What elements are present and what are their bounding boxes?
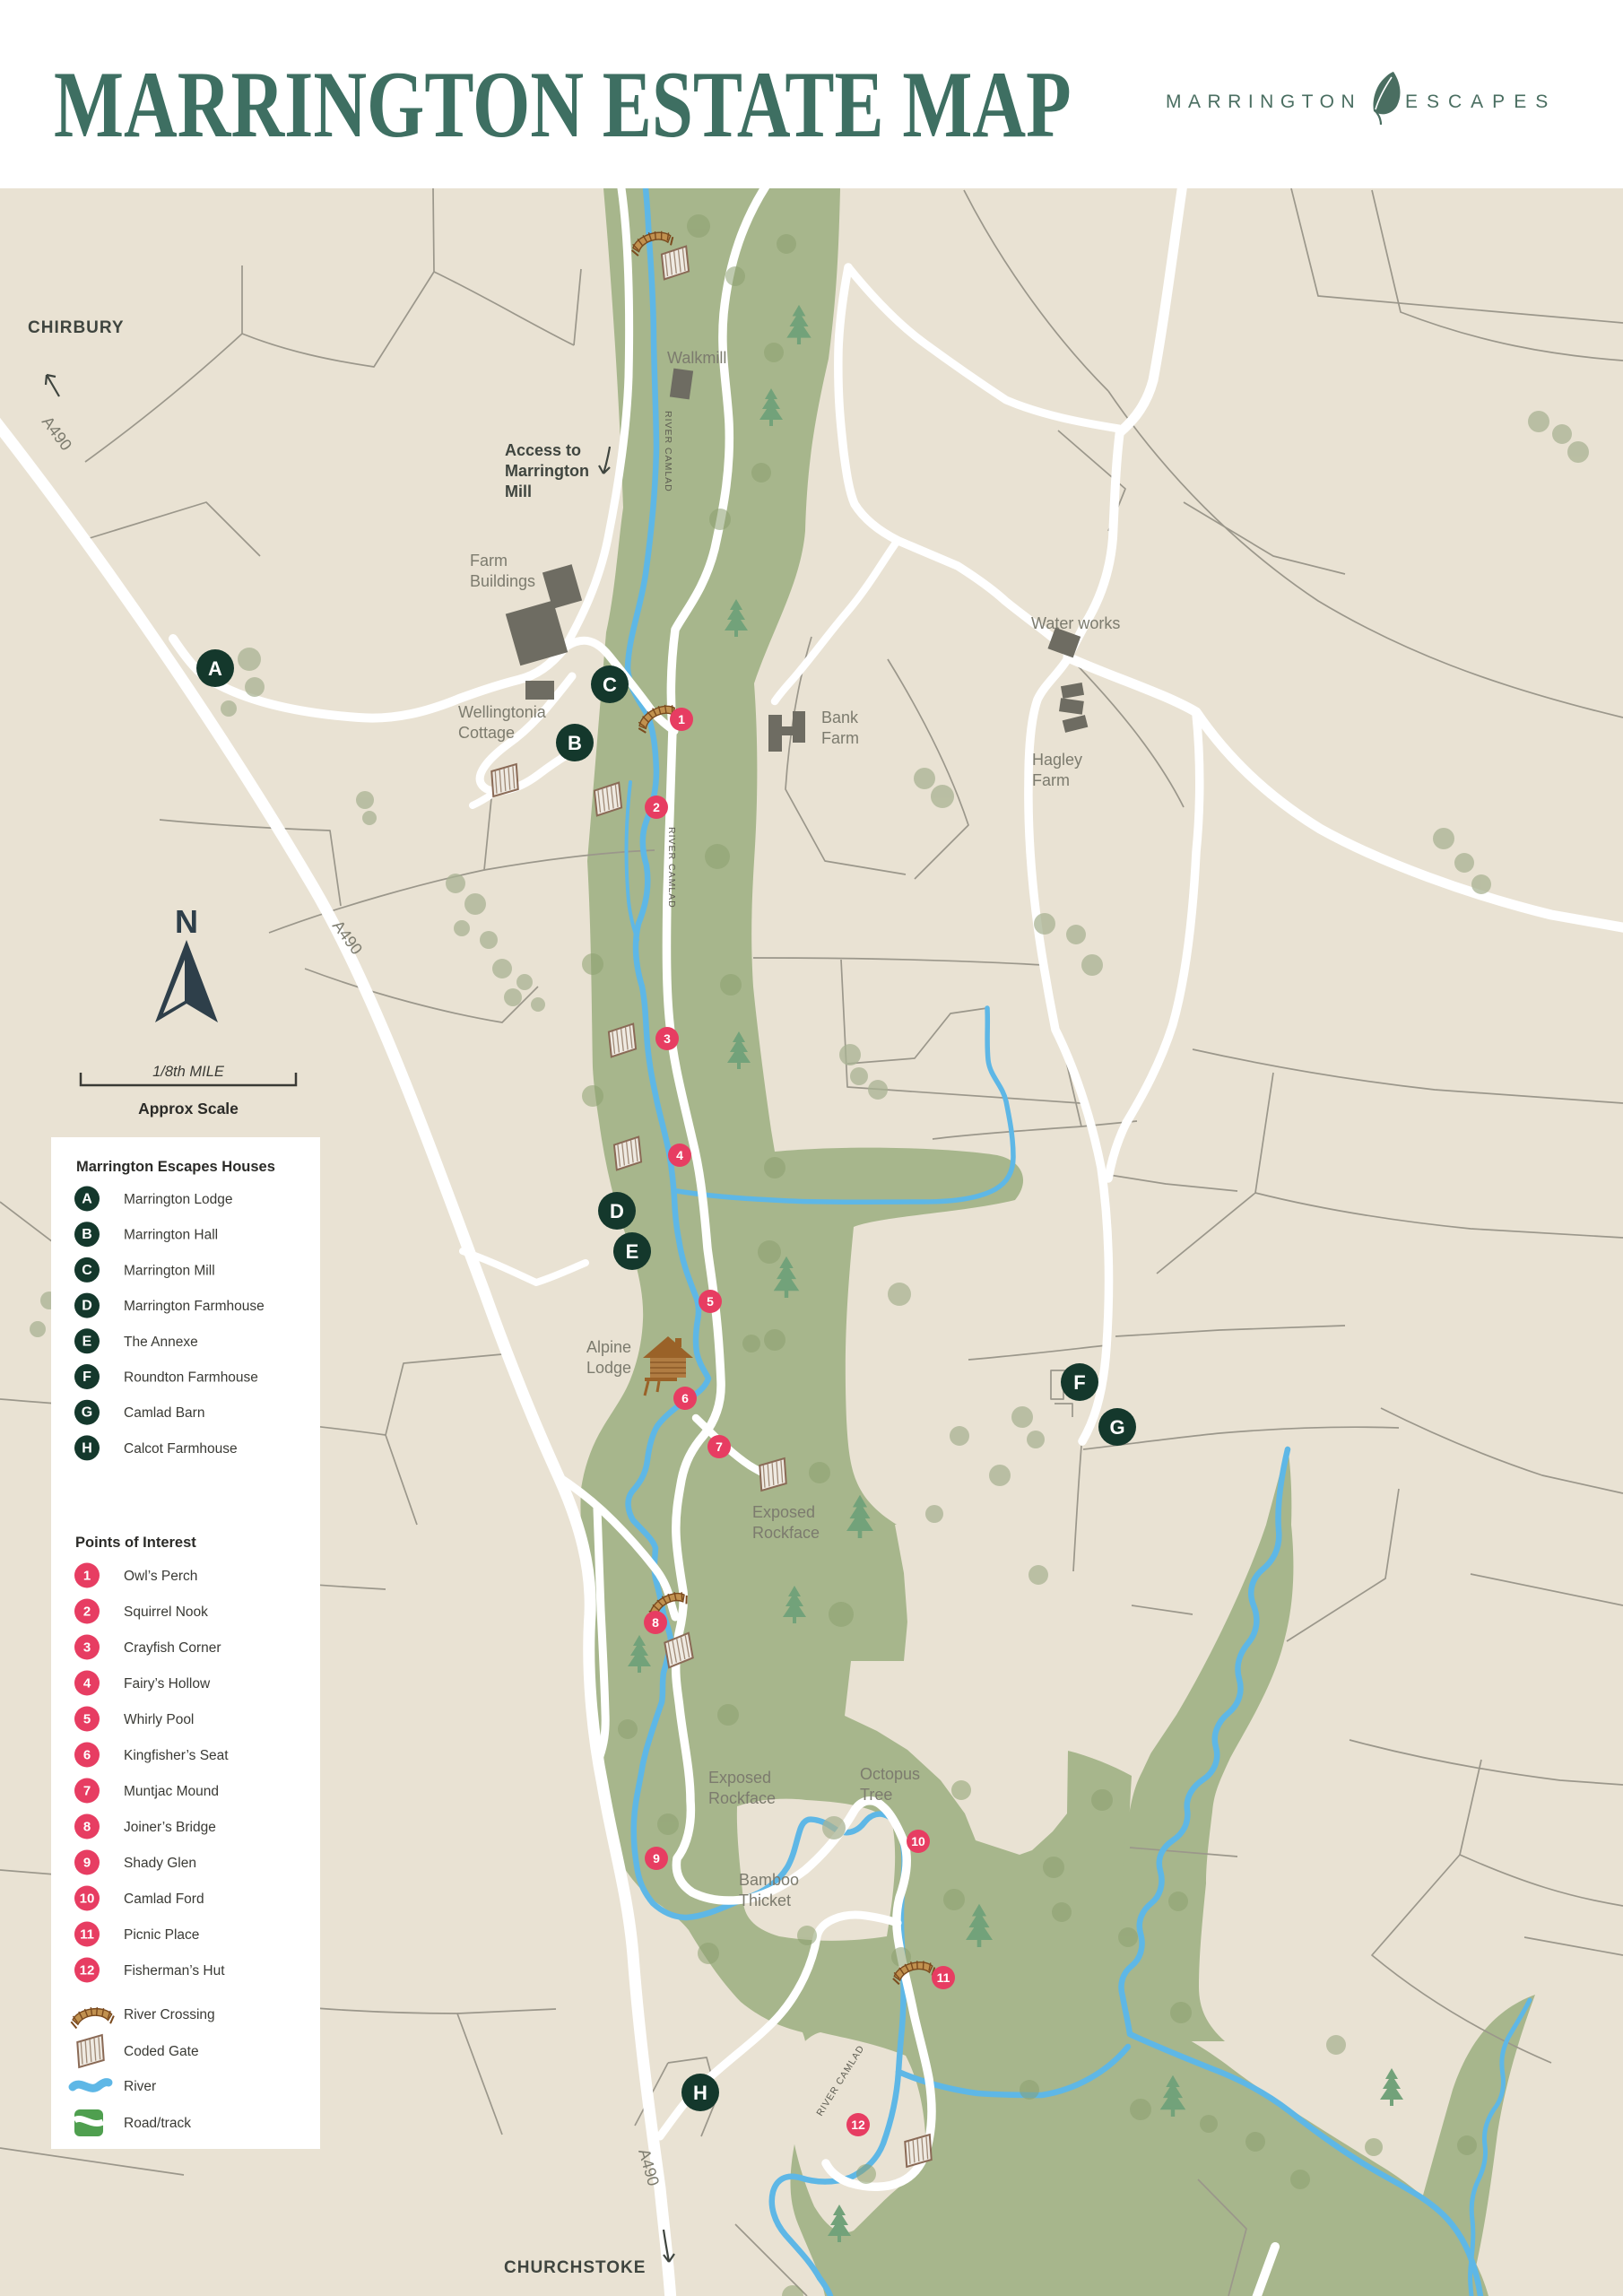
svg-text:1: 1 [678, 712, 685, 726]
svg-text:1: 1 [83, 1569, 91, 1584]
svg-text:Fairy’s Hollow: Fairy’s Hollow [124, 1676, 211, 1692]
svg-text:A: A [82, 1192, 92, 1207]
svg-text:N: N [175, 903, 198, 940]
svg-text:Roundton Farmhouse: Roundton Farmhouse [124, 1370, 258, 1386]
svg-text:Calcot Farmhouse: Calcot Farmhouse [124, 1441, 238, 1457]
svg-text:Shady Glen: Shady Glen [124, 1856, 196, 1871]
svg-text:Tree: Tree [860, 1786, 892, 1804]
svg-text:Farm: Farm [1032, 771, 1070, 789]
svg-text:2: 2 [83, 1605, 91, 1620]
svg-text:River Crossing: River Crossing [124, 2007, 215, 2022]
svg-text:Camlad Barn: Camlad Barn [124, 1405, 204, 1421]
svg-text:Water works: Water works [1031, 614, 1120, 632]
svg-text:Muntjac Mound: Muntjac Mound [124, 1784, 219, 1799]
svg-text:Lodge: Lodge [586, 1359, 631, 1377]
svg-text:7: 7 [716, 1439, 723, 1454]
svg-text:10: 10 [911, 1834, 925, 1848]
svg-text:7: 7 [83, 1784, 91, 1799]
svg-text:Marrington Farmhouse: Marrington Farmhouse [124, 1299, 265, 1314]
svg-text:Alpine: Alpine [586, 1338, 631, 1356]
svg-text:Approx Scale: Approx Scale [138, 1100, 239, 1118]
svg-text:Marrington Escapes Houses: Marrington Escapes Houses [76, 1159, 275, 1175]
svg-text:C: C [82, 1263, 92, 1278]
svg-text:B: B [82, 1227, 92, 1242]
svg-text:Whirly Pool: Whirly Pool [124, 1712, 194, 1727]
svg-text:2: 2 [653, 800, 660, 814]
svg-text:Access to: Access to [505, 441, 581, 459]
svg-text:1/8th MILE: 1/8th MILE [152, 1064, 225, 1080]
svg-text:Exposed: Exposed [752, 1503, 815, 1521]
svg-text:C: C [603, 674, 617, 696]
svg-text:Kingfisher’s Seat: Kingfisher’s Seat [124, 1748, 229, 1763]
svg-text:6: 6 [681, 1391, 689, 1405]
svg-text:G: G [1109, 1416, 1124, 1439]
svg-text:Marrington Hall: Marrington Hall [124, 1228, 218, 1243]
svg-text:Points of Interest: Points of Interest [75, 1535, 196, 1551]
svg-text:8: 8 [652, 1615, 659, 1630]
svg-text:8: 8 [83, 1820, 91, 1835]
svg-text:Walkmill: Walkmill [667, 349, 726, 367]
svg-text:Octopus: Octopus [860, 1765, 920, 1783]
svg-text:Crayfish Corner: Crayfish Corner [124, 1640, 221, 1656]
svg-text:Bank: Bank [821, 709, 859, 726]
svg-text:Exposed: Exposed [708, 1769, 771, 1787]
svg-text:Marrington: Marrington [505, 462, 589, 480]
svg-text:RIVER CAMLAD: RIVER CAMLAD [663, 411, 673, 492]
svg-text:Owl’s Perch: Owl’s Perch [124, 1569, 197, 1584]
svg-text:3: 3 [83, 1640, 91, 1656]
svg-text:Fisherman’s Hut: Fisherman’s Hut [124, 1963, 225, 1979]
svg-text:Thicket: Thicket [739, 1892, 791, 1909]
svg-text:Joiner’s Bridge: Joiner’s Bridge [124, 1820, 216, 1835]
svg-text:9: 9 [653, 1851, 660, 1865]
svg-text:B: B [568, 732, 582, 754]
svg-text:RIVER CAMLAD: RIVER CAMLAD [666, 827, 677, 909]
svg-text:G: G [82, 1405, 92, 1421]
svg-text:F: F [1073, 1371, 1085, 1394]
svg-text:Farm: Farm [821, 729, 859, 747]
svg-text:Camlad Ford: Camlad Ford [124, 1892, 204, 1907]
svg-text:Rockface: Rockface [752, 1524, 820, 1542]
svg-text:4: 4 [676, 1148, 683, 1162]
svg-text:Buildings: Buildings [470, 572, 535, 590]
svg-text:Mill: Mill [505, 483, 532, 500]
svg-text:River: River [124, 2079, 156, 2094]
svg-text:Cottage: Cottage [458, 724, 515, 742]
svg-text:Rockface: Rockface [708, 1789, 776, 1807]
svg-text:10: 10 [80, 1892, 95, 1907]
svg-text:5: 5 [707, 1294, 714, 1309]
svg-text:11: 11 [80, 1927, 94, 1943]
svg-text:Picnic Place: Picnic Place [124, 1927, 199, 1943]
svg-text:12: 12 [80, 1963, 95, 1979]
svg-text:D: D [82, 1299, 92, 1314]
svg-text:5: 5 [83, 1712, 91, 1727]
svg-text:Squirrel Nook: Squirrel Nook [124, 1605, 208, 1620]
svg-text:F: F [82, 1370, 91, 1385]
svg-text:3: 3 [664, 1031, 671, 1046]
svg-text:12: 12 [851, 2118, 865, 2132]
svg-text:Wellingtonia: Wellingtonia [458, 703, 547, 721]
svg-text:11: 11 [937, 1970, 950, 1985]
svg-text:CHURCHSTOKE: CHURCHSTOKE [504, 2258, 646, 2277]
svg-text:A: A [208, 657, 222, 680]
svg-text:The Annexe: The Annexe [124, 1335, 198, 1350]
svg-text:H: H [82, 1440, 92, 1456]
svg-text:CHIRBURY: CHIRBURY [28, 318, 125, 337]
svg-text:4: 4 [83, 1676, 91, 1692]
svg-text:Marrington Lodge: Marrington Lodge [124, 1192, 233, 1207]
svg-text:D: D [610, 1200, 624, 1222]
svg-text:Marrington Mill: Marrington Mill [124, 1263, 215, 1278]
svg-text:Farm: Farm [470, 552, 508, 570]
svg-text:Road/track: Road/track [124, 2116, 191, 2131]
svg-text:H: H [693, 2082, 707, 2104]
svg-text:E: E [82, 1334, 92, 1349]
svg-text:E: E [626, 1240, 639, 1263]
svg-text:Hagley: Hagley [1032, 751, 1082, 769]
svg-text:9: 9 [83, 1856, 91, 1871]
svg-text:6: 6 [83, 1748, 91, 1763]
svg-text:Coded Gate: Coded Gate [124, 2044, 199, 2059]
svg-text:Bamboo: Bamboo [739, 1871, 799, 1889]
